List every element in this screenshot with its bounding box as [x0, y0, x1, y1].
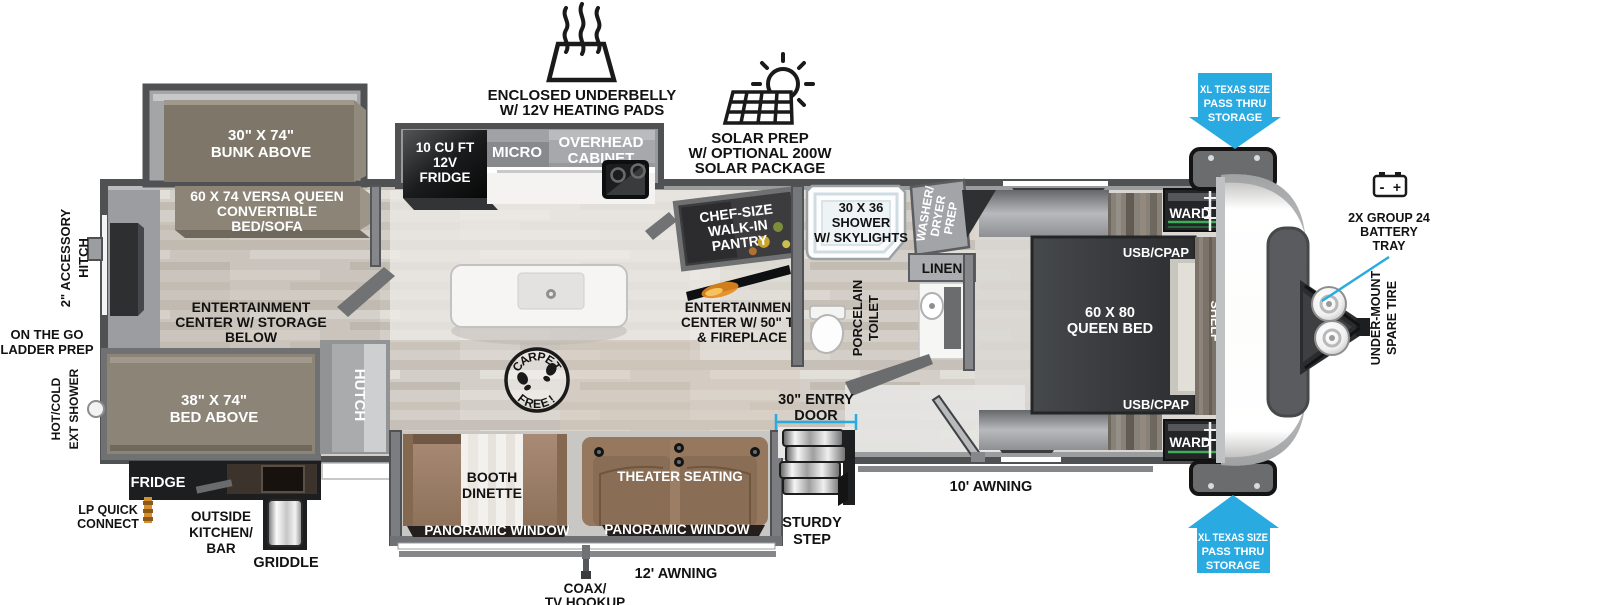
svg-text:PANORAMIC WINDOW: PANORAMIC WINDOW — [424, 523, 569, 538]
svg-text:BELOW: BELOW — [225, 329, 278, 345]
svg-text:KITCHEN/: KITCHEN/ — [189, 525, 253, 540]
svg-text:HUTCH: HUTCH — [351, 369, 368, 422]
svg-text:SPARE TIRE: SPARE TIRE — [1385, 281, 1399, 355]
svg-text:STORAGE: STORAGE — [1206, 560, 1260, 572]
svg-text:ENTERTAINMENT: ENTERTAINMENT — [685, 300, 800, 315]
svg-text:PASS THRU: PASS THRU — [1204, 98, 1267, 110]
svg-text:60 X 74 VERSA QUEEN: 60 X 74 VERSA QUEEN — [190, 188, 344, 204]
svg-text:LP QUICK: LP QUICK — [78, 503, 138, 517]
svg-text:QUEEN BED: QUEEN BED — [1067, 321, 1153, 337]
svg-text:-: - — [1380, 179, 1385, 196]
svg-text:PORCELAIN: PORCELAIN — [850, 280, 865, 357]
svg-text:XL TEXAS SIZE: XL TEXAS SIZE — [1200, 84, 1270, 96]
svg-text:MICRO: MICRO — [492, 144, 542, 161]
svg-text:THEATER SEATING: THEATER SEATING — [617, 469, 743, 484]
svg-text:TV HOOKUP: TV HOOKUP — [545, 595, 625, 605]
svg-text:SHOWER: SHOWER — [832, 215, 891, 230]
svg-text:CENTER W/ 50" TV: CENTER W/ 50" TV — [681, 315, 803, 330]
svg-text:OUTSIDE: OUTSIDE — [191, 509, 251, 524]
svg-text:12V: 12V — [433, 155, 457, 170]
svg-text:BAR: BAR — [206, 541, 235, 556]
svg-text:WARD: WARD — [1169, 206, 1210, 221]
svg-text:DINETTE: DINETTE — [462, 485, 522, 501]
svg-text:USB/CPAP: USB/CPAP — [1123, 397, 1190, 412]
svg-text:CONNECT: CONNECT — [77, 517, 139, 531]
svg-text:12' AWNING: 12' AWNING — [635, 566, 718, 582]
svg-text:GRIDDLE: GRIDDLE — [253, 555, 319, 571]
svg-text:PASS THRU: PASS THRU — [1202, 546, 1265, 558]
svg-text:W/ SKYLIGHTS: W/ SKYLIGHTS — [814, 230, 908, 245]
svg-text:SOLAR PACKAGE: SOLAR PACKAGE — [695, 160, 826, 177]
svg-text:10' AWNING: 10' AWNING — [950, 479, 1033, 495]
svg-text:STEP: STEP — [793, 532, 831, 548]
svg-text:2" ACCESSORY: 2" ACCESSORY — [58, 208, 73, 307]
svg-text:COAX/: COAX/ — [564, 581, 607, 596]
svg-text:60 X 80: 60 X 80 — [1085, 305, 1135, 321]
svg-text:LADDER PREP: LADDER PREP — [0, 342, 94, 357]
svg-text:LINEN: LINEN — [922, 261, 963, 276]
svg-text:& FIREPLACE: & FIREPLACE — [697, 330, 787, 345]
svg-text:DOOR: DOOR — [794, 408, 838, 424]
svg-text:BATTERY: BATTERY — [1360, 225, 1418, 239]
svg-text:2X GROUP 24: 2X GROUP 24 — [1348, 211, 1430, 225]
svg-text:CENTER W/ STORAGE: CENTER W/ STORAGE — [175, 314, 326, 330]
svg-text:BOOTH: BOOTH — [467, 469, 518, 485]
svg-text:CONVERTIBLE: CONVERTIBLE — [217, 203, 317, 219]
svg-text:ENTERTAINMENT: ENTERTAINMENT — [192, 299, 311, 315]
svg-text:WARD: WARD — [1169, 435, 1210, 450]
svg-text:FRIDGE: FRIDGE — [131, 475, 186, 491]
svg-text:STURDY: STURDY — [782, 515, 842, 531]
svg-text:FRIDGE: FRIDGE — [419, 170, 470, 185]
svg-text:BUNK ABOVE: BUNK ABOVE — [211, 144, 311, 161]
svg-text:XL TEXAS SIZE: XL TEXAS SIZE — [1198, 532, 1268, 544]
svg-text:BED ABOVE: BED ABOVE — [170, 409, 259, 426]
svg-text:PANORAMIC WINDOW: PANORAMIC WINDOW — [604, 522, 749, 537]
svg-text:30" X 74": 30" X 74" — [228, 127, 294, 144]
svg-text:38" X 74": 38" X 74" — [181, 392, 247, 409]
svg-text:BED/SOFA: BED/SOFA — [231, 218, 303, 234]
svg-text:OVERHEAD: OVERHEAD — [558, 134, 643, 151]
svg-text:10 CU FT: 10 CU FT — [416, 140, 475, 155]
svg-text:W/ 12V HEATING PADS: W/ 12V HEATING PADS — [500, 102, 664, 119]
svg-text:EXT SHOWER: EXT SHOWER — [67, 368, 81, 449]
svg-text:USB/CPAP: USB/CPAP — [1123, 245, 1190, 260]
svg-text:ON THE GO: ON THE GO — [11, 327, 84, 342]
svg-text:30" ENTRY: 30" ENTRY — [778, 392, 854, 408]
svg-text:TRAY: TRAY — [1373, 239, 1407, 253]
svg-text:TOILET: TOILET — [866, 295, 881, 341]
svg-text:UNDER-MOUNT: UNDER-MOUNT — [1369, 270, 1383, 365]
svg-text:HOT/COLD: HOT/COLD — [49, 377, 63, 440]
svg-text:HITCH: HITCH — [76, 238, 91, 278]
svg-text:30 X 36: 30 X 36 — [839, 200, 884, 215]
svg-text:+: + — [1393, 179, 1401, 195]
svg-text:STORAGE: STORAGE — [1208, 112, 1262, 124]
